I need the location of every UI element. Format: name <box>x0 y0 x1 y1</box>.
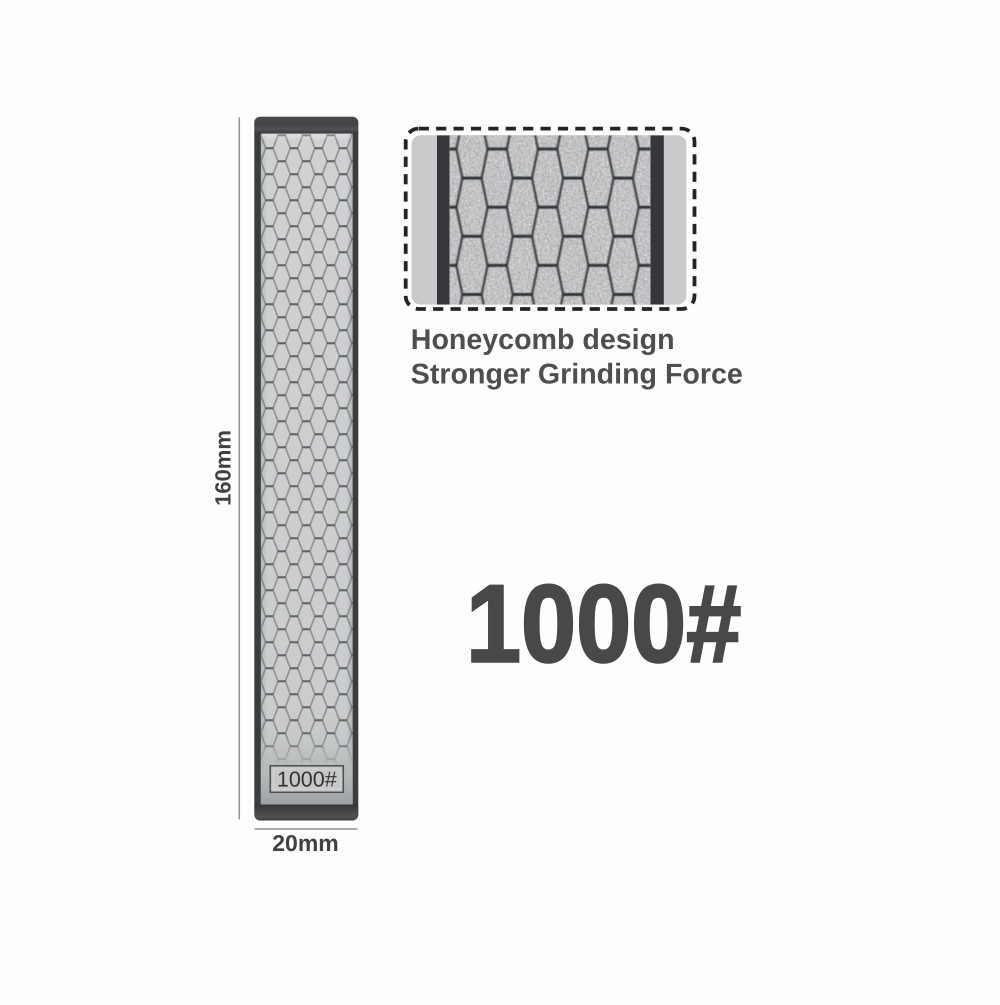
svg-text:Stronger Grinding Force: Stronger Grinding Force <box>411 358 743 390</box>
svg-text:160mm: 160mm <box>210 430 235 506</box>
svg-text:1000#: 1000# <box>466 563 741 686</box>
svg-text:20mm: 20mm <box>272 830 338 856</box>
svg-text:1000#: 1000# <box>277 768 337 792</box>
svg-text:Honeycomb design: Honeycomb design <box>411 324 675 356</box>
